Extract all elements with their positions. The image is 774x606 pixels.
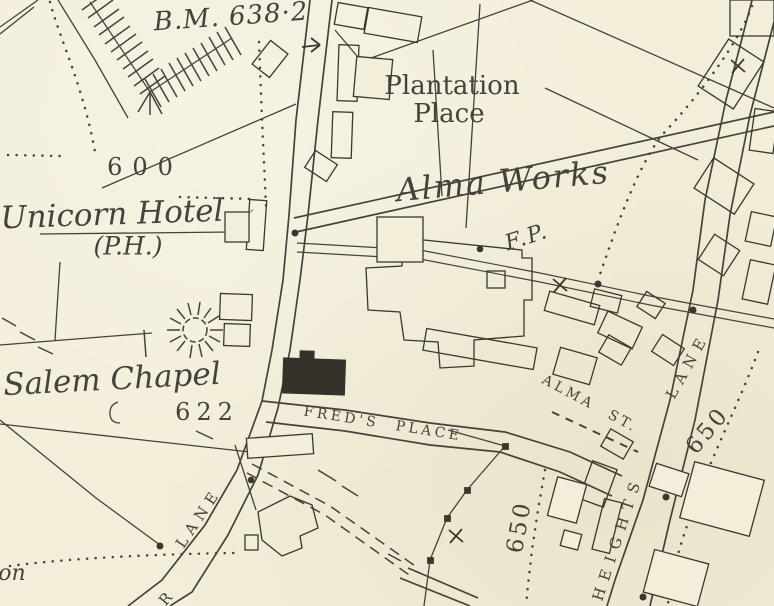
map-canvas[interactable]: B.M. 638·2 Plantation Place Alma Works F…: [0, 0, 774, 606]
unicorn-hotel-label: Unicorn Hotel: [0, 196, 224, 235]
buildings-solid: [282, 351, 345, 395]
plantation-place-label-line1: Plantation: [384, 73, 519, 99]
unicorn-hotel-ph-label: (P.H.): [94, 234, 163, 259]
partial-word-on-label: on: [0, 563, 26, 585]
spot-level-622: 622: [175, 400, 239, 424]
spot-level-600: 600: [107, 155, 183, 179]
dashed-paths: [2, 318, 638, 577]
plantation-place-label-line2: Place: [413, 101, 484, 127]
shaft-sunburst-icon: [167, 302, 223, 358]
